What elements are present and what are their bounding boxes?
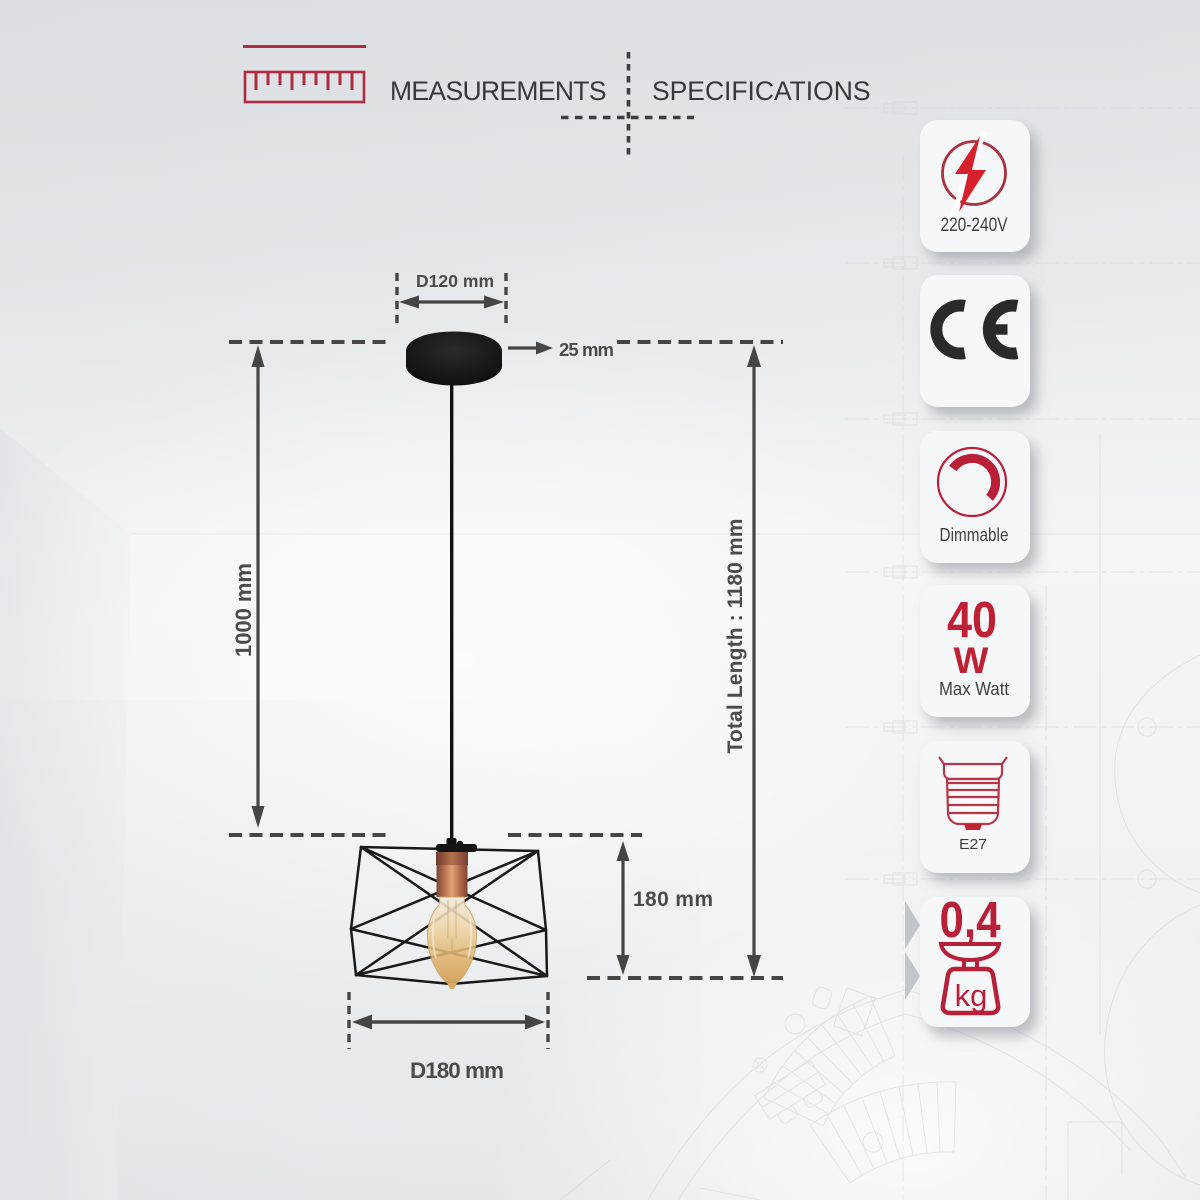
svg-text:MEASUREMENTS: MEASUREMENTS — [390, 76, 607, 106]
svg-text:25 mm: 25 mm — [559, 339, 614, 360]
svg-text:SPECIFICATIONS: SPECIFICATIONS — [652, 76, 871, 106]
svg-text:1000 mm: 1000 mm — [231, 563, 256, 657]
svg-text:0,4: 0,4 — [940, 891, 1002, 948]
svg-text:D120 mm: D120 mm — [416, 271, 494, 291]
svg-text:220-240V: 220-240V — [941, 215, 1008, 236]
svg-text:180 mm: 180 mm — [633, 888, 713, 911]
svg-text:Total Length : 1180 mm: Total Length : 1180 mm — [724, 519, 747, 754]
svg-text:D180 mm: D180 mm — [410, 1058, 504, 1083]
svg-text:E27: E27 — [959, 836, 987, 853]
svg-text:kg: kg — [955, 978, 988, 1013]
svg-text:W: W — [954, 640, 989, 681]
svg-text:Dimmable: Dimmable — [940, 524, 1009, 545]
svg-text:Max Watt: Max Watt — [939, 678, 1009, 699]
